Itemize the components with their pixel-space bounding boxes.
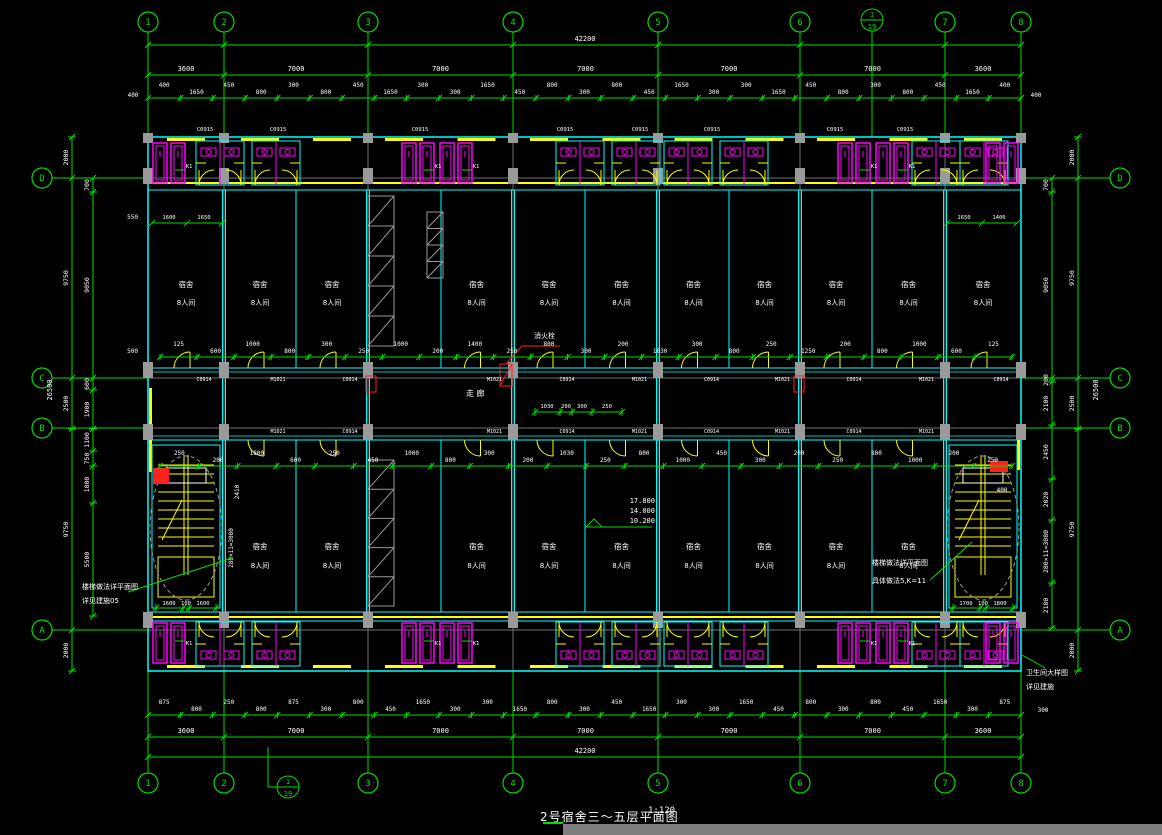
cad-text: K1	[186, 641, 193, 647]
cad-text: 2100	[1042, 396, 1050, 412]
cad-text: 26500	[1092, 379, 1100, 400]
cad-text: M1021	[919, 377, 934, 383]
cad-path	[897, 352, 913, 368]
cad-line	[368, 548, 394, 577]
cad-rect	[313, 665, 351, 668]
cad-text: 300	[579, 706, 590, 713]
cad-text: 宿舍	[901, 279, 916, 289]
cad-text: 2000	[1068, 150, 1076, 166]
cad-text: 7000	[577, 65, 594, 73]
cad-text: 1650	[933, 699, 948, 706]
cad-line	[368, 316, 394, 346]
cad-ref	[664, 622, 712, 666]
cad-rect	[1016, 424, 1026, 440]
cad-text: C0914	[342, 429, 357, 435]
cad-text: 300	[692, 341, 703, 348]
cad-text: 875	[159, 699, 170, 706]
cad-text: M1021	[487, 377, 502, 383]
cad-ref	[912, 622, 960, 666]
cad-text: 450	[935, 82, 946, 89]
cad-line	[1022, 655, 1045, 668]
cad-text: 6	[797, 779, 802, 789]
cad-text: 1000	[245, 341, 260, 348]
cad-text: 2500	[62, 396, 70, 412]
cad-text: 1000	[908, 457, 923, 464]
cad-text: 1600	[162, 601, 175, 607]
cad-path	[465, 352, 481, 368]
cad-text: 200	[213, 457, 224, 464]
cad-text: 42200	[175, 0, 196, 2]
cad-text: 2450	[1042, 444, 1050, 460]
cad-text: 宿舍	[469, 541, 484, 551]
cad-text: 7000	[288, 727, 305, 735]
cad-line	[368, 286, 394, 316]
cad-text: 450	[353, 82, 364, 89]
cad-text: 250	[358, 348, 369, 355]
cad-text: 宿舍	[686, 279, 701, 289]
cad-text: 4	[510, 18, 515, 28]
cad-text: 14.000	[630, 507, 655, 515]
cad-text: C0914	[342, 377, 357, 383]
cad-text: M1021	[270, 429, 285, 435]
cad-rect	[508, 133, 518, 143]
cad-text: 800	[838, 89, 849, 96]
cad-text: 200	[840, 341, 851, 348]
cad-text: 300	[676, 699, 687, 706]
cad-text: 600	[290, 457, 301, 464]
cad-text: 300	[708, 89, 719, 96]
cad-text: 300	[450, 706, 461, 713]
cad-text: 8	[1018, 18, 1023, 28]
cad-ref	[440, 623, 472, 663]
cad-text: 1030	[653, 348, 668, 355]
cad-rect	[219, 362, 229, 378]
cad-text: 400	[159, 82, 170, 89]
hydrant-label: 消火栓	[534, 331, 555, 341]
cad-text: 8人间	[177, 299, 195, 307]
cad-text: 600	[83, 378, 91, 390]
cad-text: 200	[794, 450, 805, 457]
drawing-scale: 1:120	[648, 806, 675, 816]
cad-text: 300	[288, 82, 299, 89]
cad-text: 7	[942, 779, 947, 789]
cad-ref	[153, 623, 185, 663]
cad-ref	[196, 622, 244, 666]
cad-text: 1700	[959, 601, 972, 607]
cad-text: 宿舍	[542, 541, 557, 551]
cad-text: 8人间	[684, 299, 702, 307]
cad-text: 3600	[975, 727, 992, 735]
cad-text: 800	[877, 348, 888, 355]
cad-path	[320, 352, 336, 368]
cad-ref	[402, 143, 434, 183]
cad-text: 450	[368, 457, 379, 464]
cad-rect	[940, 362, 950, 378]
cad-text: C	[39, 374, 44, 384]
cad-text: 200	[522, 457, 533, 464]
cad-text: A	[1117, 626, 1123, 636]
cad-rect	[363, 424, 373, 440]
cad-text: B	[1117, 424, 1122, 434]
cad-text: 2	[221, 779, 226, 789]
cad-text: C0915	[704, 127, 721, 133]
cad-text: 100	[181, 601, 191, 607]
cad-text: 1650	[771, 89, 786, 96]
cad-text: 宿舍	[757, 279, 772, 289]
cad-ref	[960, 622, 1008, 666]
cad-text: 9750	[62, 522, 70, 538]
cad-text: M1021	[632, 429, 647, 435]
cad-text: K1	[435, 641, 442, 647]
cad-text: M1021	[270, 377, 285, 383]
cad-text: 800	[805, 699, 816, 706]
cad-rect	[166, 468, 206, 483]
cad-text: K1	[909, 641, 916, 647]
cad-text: 3	[365, 779, 370, 789]
cad-text: K1	[473, 164, 480, 170]
cad-text: 1800	[993, 601, 1006, 607]
cad-text: 2500	[1068, 396, 1076, 412]
cad-text: C0915	[412, 127, 429, 133]
cad-line	[368, 256, 394, 286]
cad-text: 8人间	[323, 299, 341, 307]
cad-path	[248, 352, 264, 368]
cad-rect	[385, 138, 423, 141]
cad-text: 600	[951, 348, 962, 355]
cad-text: K1	[186, 164, 193, 170]
cad-text: 1600	[196, 601, 209, 607]
cad-text: 300	[579, 89, 590, 96]
cad-ref	[440, 143, 472, 183]
cad-text: 1650	[965, 89, 980, 96]
cad-text: 宿舍	[829, 541, 844, 551]
cad-path	[682, 352, 698, 368]
cad-text: 200	[618, 341, 629, 348]
cad-rect	[363, 133, 373, 143]
cad-rect	[143, 168, 153, 184]
cad-text: 8人间	[540, 299, 558, 307]
cad-text: 2	[221, 18, 226, 28]
cad-text: 1000	[394, 341, 409, 348]
cad-path	[174, 352, 190, 368]
cad-text: A	[39, 626, 45, 636]
cad-text: C0914	[704, 377, 719, 383]
cad-text: 800	[544, 341, 555, 348]
cad-line	[959, 500, 979, 540]
cad-text: 300	[755, 457, 766, 464]
cad-text: 700	[1042, 179, 1050, 191]
cad-text: 7000	[864, 65, 881, 73]
cad-text: 400	[128, 92, 139, 99]
cad-text: 800	[871, 450, 882, 457]
cad-text: D	[1117, 174, 1122, 184]
cad-rect	[795, 612, 805, 628]
cad-text: 800	[547, 82, 558, 89]
cad-text: C0915	[827, 127, 844, 133]
cad-rect	[940, 612, 950, 628]
horizontal-scrollbar[interactable]	[563, 824, 1162, 835]
cad-text: 5	[655, 18, 660, 28]
cad-text: 8人间	[684, 562, 702, 570]
cad-text: C	[1117, 374, 1122, 384]
cad-text: 1000	[912, 341, 927, 348]
cad-rect	[795, 133, 805, 143]
cad-text: 8人间	[467, 562, 485, 570]
cad-text: 800	[547, 699, 558, 706]
cad-text: 1650	[416, 699, 431, 706]
cad-text: 9050	[83, 277, 91, 293]
cad-line	[368, 577, 394, 606]
cad-text: 8人间	[540, 562, 558, 570]
cad-rect	[143, 612, 153, 628]
cad-text: 3	[365, 18, 370, 28]
cad-text: 2410	[234, 484, 241, 499]
cad-text: 300	[577, 404, 587, 410]
cad-text: 250	[766, 341, 777, 348]
cad-text: 1250	[801, 348, 816, 355]
cad-text: 800	[353, 699, 364, 706]
cad-text: 300	[417, 82, 428, 89]
cad-rect	[795, 424, 805, 440]
cad-rect	[143, 362, 153, 378]
cad-text: 1650	[739, 699, 754, 706]
cad-text: 200	[1042, 374, 1050, 386]
cad-ref	[252, 622, 300, 666]
cad-text: 2000	[62, 150, 70, 166]
cad-text: 250	[329, 450, 340, 457]
cad-rect	[458, 138, 496, 141]
cad-text: 400	[997, 487, 1008, 494]
cad-text: 300	[482, 699, 493, 706]
cad-text: 800	[870, 699, 881, 706]
cad-text: 1400	[468, 341, 483, 348]
cad-rect	[458, 665, 496, 668]
cad-text: 8人间	[323, 562, 341, 570]
cad-text: C0914	[846, 377, 861, 383]
cad-ref	[986, 623, 1018, 663]
cad-text: 600	[210, 348, 221, 355]
cad-text: 宿舍	[757, 541, 772, 551]
cad-text: 200	[561, 404, 571, 410]
cad-text: 4	[510, 779, 515, 789]
cad-text: 875	[288, 699, 299, 706]
cad-text: 300	[450, 89, 461, 96]
cad-ref	[153, 143, 185, 183]
cad-ref	[838, 623, 870, 663]
cad-text: K1	[871, 164, 878, 170]
cad-text: C0914	[196, 377, 211, 383]
cad-path	[465, 440, 481, 456]
cad-rect	[653, 362, 663, 378]
cad-rect	[817, 665, 855, 668]
cad-text: 1	[870, 11, 874, 19]
cad-line	[368, 226, 394, 256]
cad-text: 7000	[432, 65, 449, 73]
cad-text: 800	[191, 706, 202, 713]
cad-text: K1	[435, 164, 442, 170]
cad-text: 450	[902, 706, 913, 713]
cad-text: 280×11=3080	[228, 528, 235, 568]
cad-text: 400	[999, 82, 1010, 89]
cad-text: 7000	[577, 727, 594, 735]
cad-text: K1	[871, 641, 878, 647]
cad-text: 8人间	[827, 299, 845, 307]
cad-path	[610, 440, 626, 456]
stair-note-right-1: 楼梯做法详平面图	[872, 558, 928, 568]
cad-rect	[653, 612, 663, 628]
cad-text: 450	[385, 706, 396, 713]
cad-text: 250	[987, 457, 998, 464]
cad-text: 500	[127, 348, 138, 355]
cad-text: 宿舍	[829, 279, 844, 289]
cad-text: 450	[773, 706, 784, 713]
cad-text: 8人间	[251, 299, 269, 307]
cad-text: 450	[611, 699, 622, 706]
cad-path	[824, 440, 840, 456]
cad-text: 250	[602, 404, 612, 410]
cad-rect	[1016, 133, 1026, 143]
cad-text: 10.200	[630, 517, 655, 525]
cad-text: 19	[284, 790, 292, 798]
cad-text: 1	[145, 779, 150, 789]
cad-rect	[363, 612, 373, 628]
cad-text: 7000	[288, 65, 305, 73]
cad-ref	[876, 143, 908, 183]
cad-text: 800	[639, 450, 650, 457]
cad-text: 1650	[513, 706, 528, 713]
cad-text: 300	[1038, 707, 1049, 714]
cad-rect	[940, 424, 950, 440]
cad-text: 100	[978, 601, 988, 607]
cad-text: 19	[868, 23, 876, 31]
cad-text: 300	[484, 450, 495, 457]
cad-rect	[955, 557, 1011, 597]
cad-text: 1800	[250, 450, 265, 457]
cad-path	[753, 440, 769, 456]
cad-text: 7000	[432, 727, 449, 735]
cad-text: 宿舍	[976, 279, 991, 289]
cad-text: 7	[942, 18, 947, 28]
cad-ref	[720, 622, 768, 666]
cad-rect	[149, 388, 152, 428]
cad-text: 1030	[559, 450, 574, 457]
cad-text: 400	[1031, 92, 1042, 99]
cad-text: 8	[1018, 779, 1023, 789]
cad-text: 250	[832, 457, 843, 464]
cad-text: 5	[655, 779, 660, 789]
cad-path	[537, 440, 553, 456]
cad-line	[128, 558, 232, 592]
cad-path	[268, 747, 277, 787]
cad-rect	[158, 557, 214, 597]
cad-text: C0915	[197, 127, 214, 133]
cad-text: 125	[988, 341, 999, 348]
cad-text: 300	[741, 82, 752, 89]
cad-text: 800	[611, 82, 622, 89]
cad-text: 宿舍	[469, 279, 484, 289]
cad-text: 宿舍	[179, 279, 194, 289]
cad-text: 9750	[62, 270, 70, 286]
cad-text: 1600	[162, 215, 175, 221]
cad-ref	[876, 623, 908, 663]
cad-text: 300	[581, 348, 592, 355]
cad-rect	[653, 424, 663, 440]
cad-text: 2000	[62, 643, 70, 659]
cad-text: 宿舍	[253, 279, 268, 289]
cad-text: 450	[805, 82, 816, 89]
cad-text: 300	[870, 82, 881, 89]
cad-text: 300	[838, 706, 849, 713]
cad-text: 宿舍	[325, 279, 340, 289]
cad-text: 800	[729, 348, 740, 355]
cad-text: 300	[967, 706, 978, 713]
cad-rect	[143, 424, 153, 440]
cad-text: 1100	[83, 432, 91, 448]
cad-rect	[219, 424, 229, 440]
cad-text: 1650	[383, 89, 398, 96]
cad-line	[930, 542, 972, 580]
floor-plan-drawing: 1122334455667788DDCCBBAA1191194220042200…	[0, 0, 1162, 835]
cad-rect	[508, 424, 518, 440]
cad-text: M1021	[919, 429, 934, 435]
cad-text: C0914	[704, 429, 719, 435]
cad-path	[610, 352, 626, 368]
cad-text: 800	[256, 706, 267, 713]
cad-rect	[143, 133, 153, 143]
cad-text: C0915	[557, 127, 574, 133]
cad-line	[368, 196, 394, 226]
cad-text: 800	[256, 89, 267, 96]
cad-rect	[313, 138, 351, 141]
cad-text: 7000	[721, 65, 738, 73]
cad-text: 2000	[1068, 643, 1076, 659]
cad-text: 宿舍	[253, 541, 268, 551]
cad-text: 3600	[178, 65, 195, 73]
cad-text: 8人间	[251, 562, 269, 570]
cad-rect	[795, 168, 805, 184]
cad-text: 250	[506, 348, 517, 355]
cad-text: 450	[716, 450, 727, 457]
cad-rect	[153, 468, 169, 484]
cad-text: 9050	[1042, 277, 1050, 293]
cad-text: 800	[445, 457, 456, 464]
cad-text: 26500	[46, 379, 54, 400]
cad-text: 8人间	[827, 562, 845, 570]
cad-text: 宿舍	[686, 541, 701, 551]
cad-text: 300	[321, 341, 332, 348]
stair-note-left-1: 楼梯做法详平面图	[82, 582, 138, 592]
cad-rect	[1016, 362, 1026, 378]
cad-text: C0915	[897, 127, 914, 133]
cad-text: 8人间	[755, 299, 773, 307]
cad-rect	[817, 138, 855, 141]
cad-text: M1021	[775, 377, 790, 383]
cad-path	[537, 352, 553, 368]
cad-text: 800	[320, 89, 331, 96]
cad-text: 750	[83, 453, 91, 465]
corner-note-2: 详见建施	[1026, 682, 1054, 692]
cad-text: C0915	[270, 127, 287, 133]
cad-line	[368, 489, 394, 518]
cad-ref	[556, 622, 604, 666]
cad-text: 1650	[480, 82, 495, 89]
cad-ref	[402, 623, 434, 663]
cad-text: K1	[909, 164, 916, 170]
cad-path	[897, 440, 913, 456]
cad-text: 7000	[864, 727, 881, 735]
cad-text: 1	[286, 778, 290, 786]
cad-text: 9750	[1068, 522, 1076, 538]
